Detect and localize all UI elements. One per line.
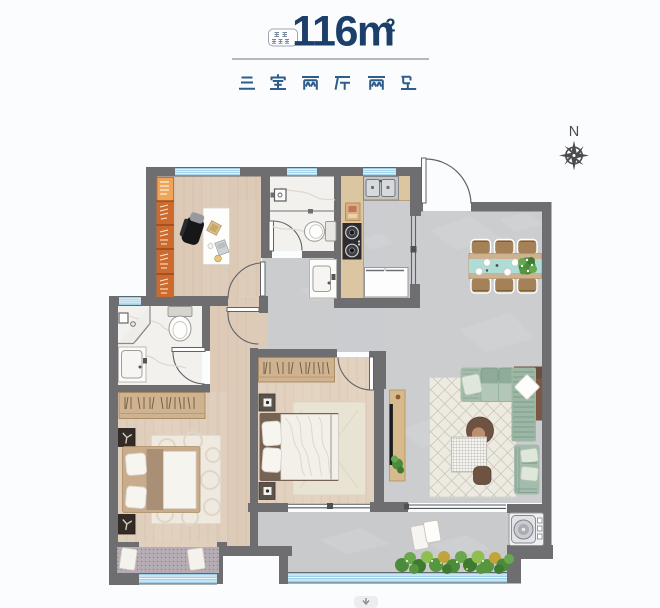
svg-text:2: 2 [386,16,396,36]
svg-text:116m: 116m [292,8,394,56]
svg-text:N: N [569,124,579,140]
